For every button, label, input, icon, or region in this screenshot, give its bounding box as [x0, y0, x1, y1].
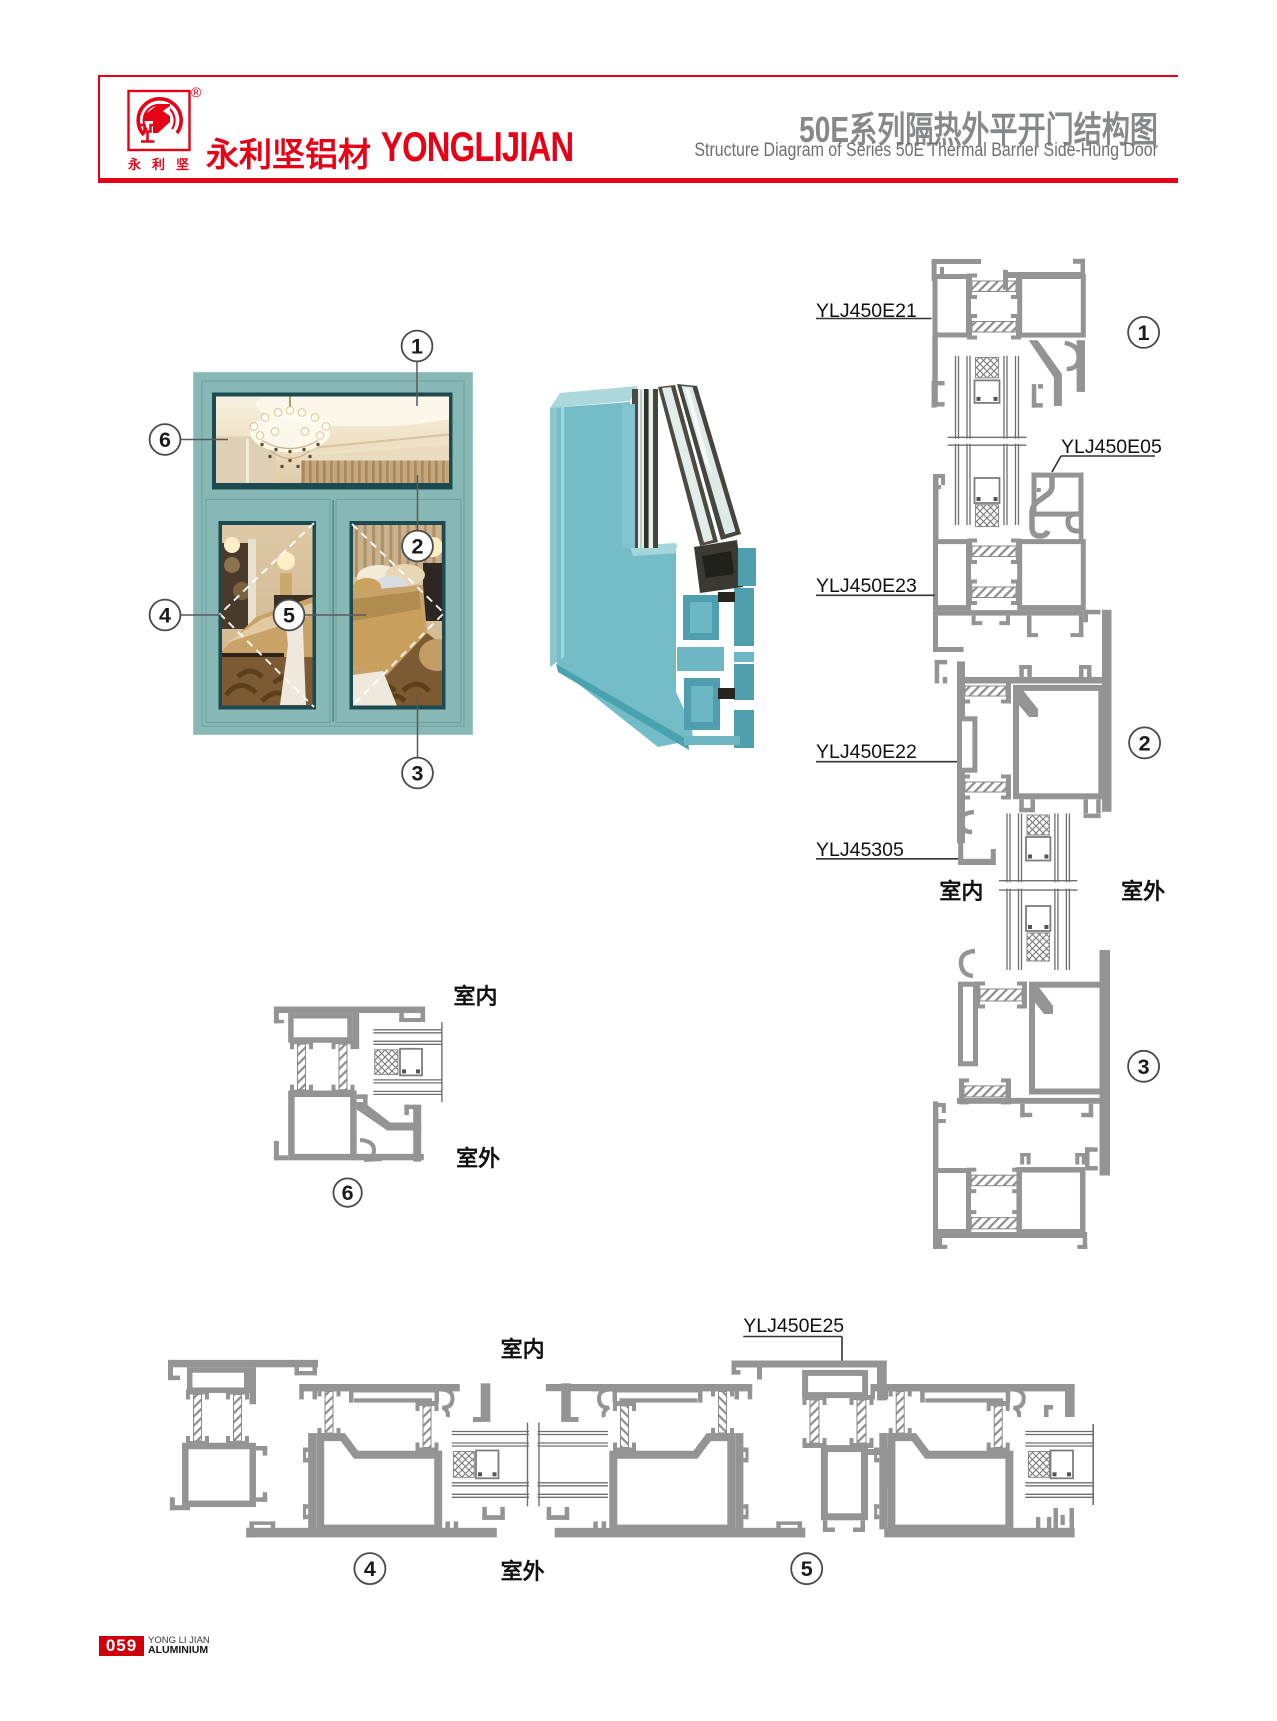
svg-text:6: 6 [342, 1181, 354, 1205]
svg-text:YLJ450E23: YLJ450E23 [816, 575, 917, 597]
svg-text:2: 2 [1139, 731, 1151, 755]
svg-text:3: 3 [412, 762, 424, 786]
svg-text:YLJ450E05: YLJ450E05 [1061, 436, 1162, 458]
svg-text:室内: 室内 [939, 879, 983, 904]
svg-text:YLJ450E22: YLJ450E22 [816, 741, 917, 763]
svg-text:3: 3 [1138, 1055, 1150, 1079]
svg-text:YLJ450E25: YLJ450E25 [743, 1315, 844, 1337]
svg-text:室外: 室外 [456, 1146, 500, 1171]
svg-text:1: 1 [1138, 321, 1150, 345]
svg-text:室内: 室内 [501, 1337, 545, 1362]
svg-text:5: 5 [801, 1557, 813, 1581]
svg-text:室外: 室外 [501, 1559, 545, 1584]
svg-text:室内: 室内 [454, 984, 498, 1009]
svg-text:YLJ45305: YLJ45305 [816, 839, 904, 861]
svg-text:室外: 室外 [1121, 879, 1165, 904]
svg-text:6: 6 [159, 428, 171, 452]
svg-text:2: 2 [412, 535, 424, 559]
svg-text:4: 4 [364, 1557, 376, 1581]
svg-text:4: 4 [159, 604, 171, 628]
svg-text:5: 5 [283, 604, 295, 628]
svg-text:1: 1 [411, 335, 423, 359]
